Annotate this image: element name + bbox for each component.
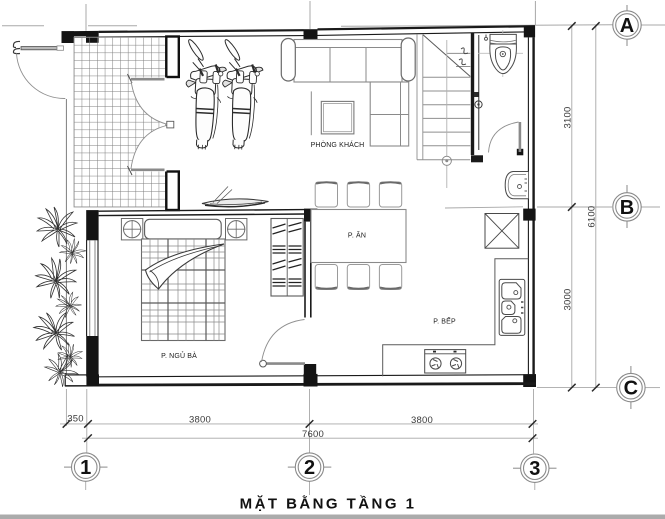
svg-text:350: 350 (67, 414, 83, 425)
svg-text:3: 3 (529, 458, 540, 480)
svg-text:B: B (620, 197, 634, 219)
svg-text:2: 2 (304, 457, 315, 479)
svg-text:C: C (624, 378, 638, 400)
svg-text:3800: 3800 (189, 414, 211, 425)
svg-text:P. ĂN: P. ĂN (348, 231, 366, 240)
svg-text:7600: 7600 (302, 429, 324, 440)
svg-text:MẶT BẰNG TẦNG 1: MẶT BẰNG TẦNG 1 (240, 495, 417, 513)
svg-text:1: 1 (80, 457, 91, 479)
svg-text:PHÒNG KHÁCH: PHÒNG KHÁCH (311, 140, 365, 149)
svg-text:3000: 3000 (563, 289, 574, 311)
svg-text:P. NGỦ BÀ: P. NGỦ BÀ (161, 351, 197, 360)
svg-text:3800: 3800 (411, 415, 433, 426)
svg-text:3100: 3100 (562, 107, 573, 129)
svg-text:A: A (620, 15, 634, 37)
svg-text:6100: 6100 (586, 206, 597, 228)
